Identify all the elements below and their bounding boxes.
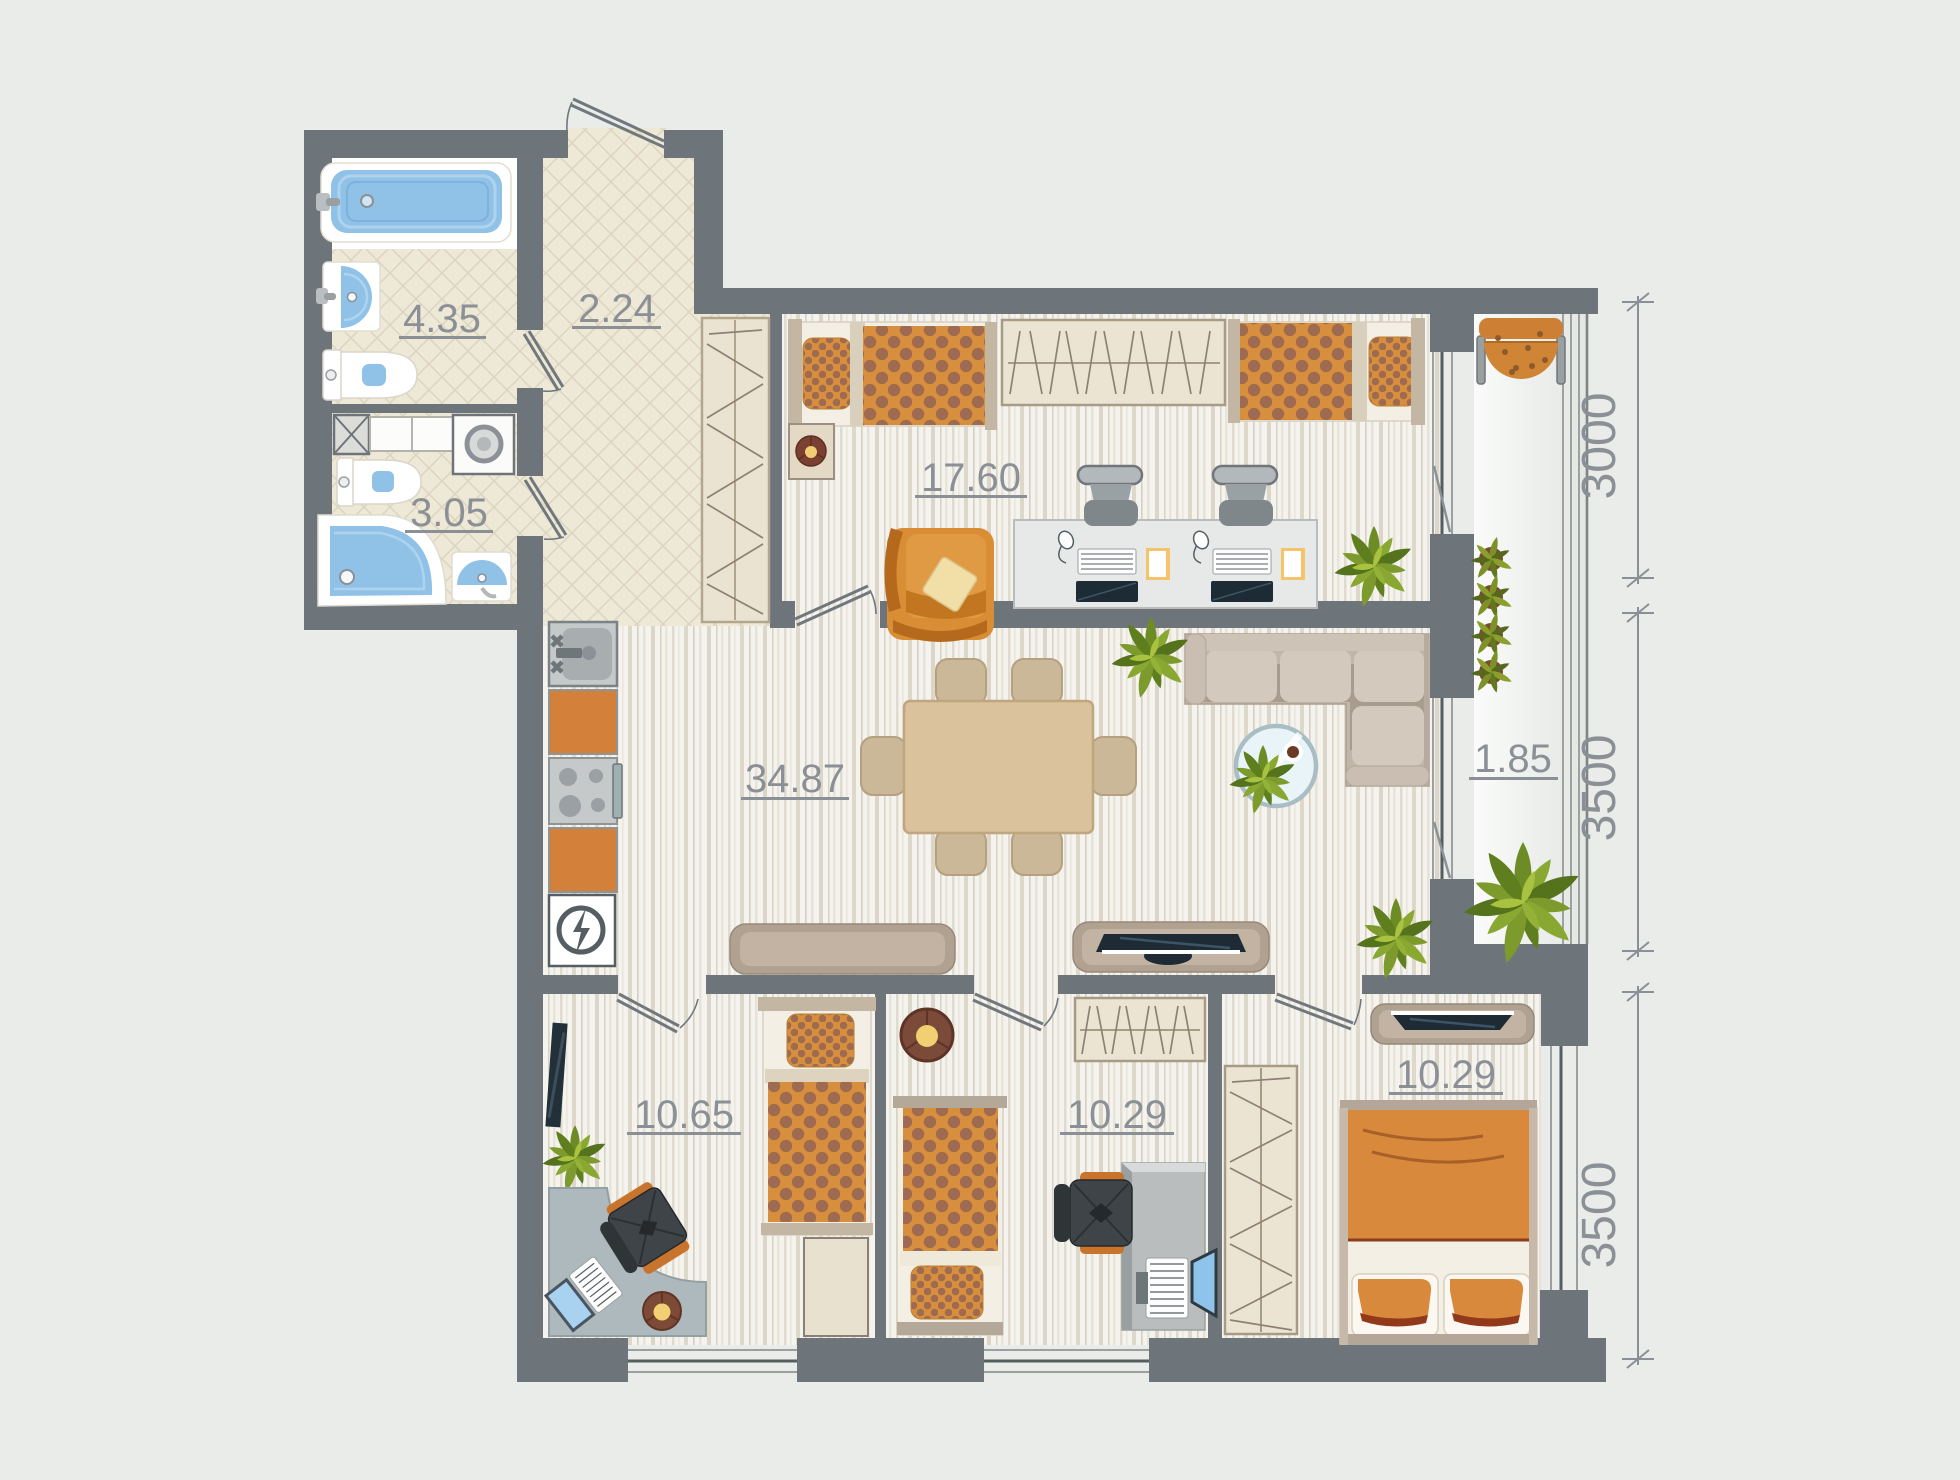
svg-text:10.29: 10.29 (1396, 1053, 1496, 1097)
svg-text:10.29: 10.29 (1067, 1093, 1167, 1137)
svg-text:3500: 3500 (1573, 735, 1626, 842)
svg-text:3.05: 3.05 (410, 491, 488, 535)
svg-text:3000: 3000 (1573, 393, 1626, 500)
svg-text:10.65: 10.65 (634, 1093, 734, 1137)
svg-text:4.35: 4.35 (403, 297, 481, 341)
svg-text:17.60: 17.60 (921, 456, 1021, 500)
svg-text:1.85: 1.85 (1474, 737, 1552, 781)
svg-text:34.87: 34.87 (745, 757, 845, 801)
svg-text:3500: 3500 (1573, 1162, 1626, 1269)
svg-text:2.24: 2.24 (578, 287, 656, 331)
